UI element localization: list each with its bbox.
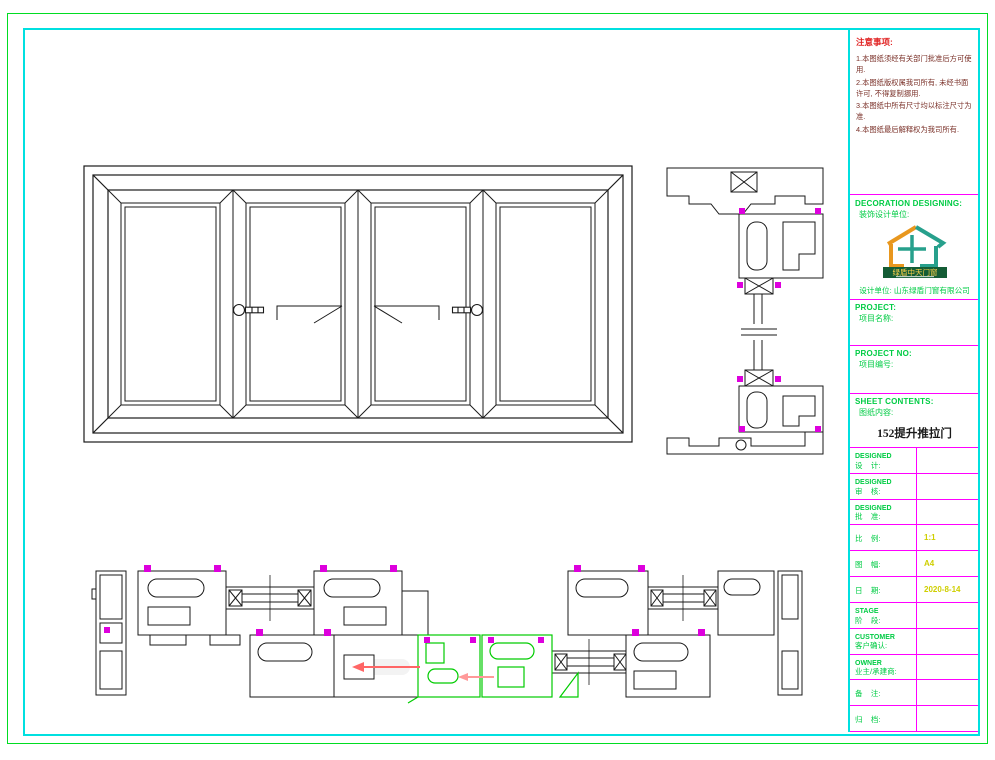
- row-date: 日 期: 2020-8-14: [850, 576, 978, 602]
- paper-size-value: A4: [924, 559, 934, 568]
- door-handle-icon: [234, 305, 264, 316]
- row-designed-2: DESIGNED审 核:: [850, 473, 978, 499]
- row-customer: CUSTOMER客户确认:: [850, 628, 978, 654]
- row-remarks: 备 注:: [850, 679, 978, 705]
- row-label-zh: 阶 段:: [855, 616, 916, 625]
- row-label-zh: 比 例:: [855, 534, 916, 543]
- title-block: 注意事项: 1.本图纸须经有关部门批准后方可使用. 2.本图纸版权属我司所有, …: [848, 28, 978, 732]
- sheet-contents-label-zh: 图纸内容:: [855, 407, 974, 418]
- notes-section: 注意事项: 1.本图纸须经有关部门批准后方可使用. 2.本图纸版权属我司所有, …: [850, 28, 978, 195]
- row-label-zh: 审 核:: [855, 487, 916, 496]
- row-label-zh: 日 期:: [855, 586, 916, 595]
- vertical-section-drawing: [655, 158, 835, 458]
- project-no-section: PROJECT NO: 项目编号:: [850, 346, 978, 394]
- project-no-label-zh: 项目编号:: [855, 359, 974, 370]
- notes-title: 注意事项:: [856, 36, 973, 48]
- company-logo: 绿盾中天门窗: [855, 222, 974, 283]
- note-item: 3.本图纸中所有尺寸均以标注尺寸为准.: [856, 100, 973, 123]
- horizontal-section-drawing: [90, 555, 805, 705]
- project-no-label: PROJECT NO:: [855, 349, 974, 358]
- svg-text:绿盾中天门窗: 绿盾中天门窗: [892, 267, 937, 277]
- row-label-zh: 设 计:: [855, 461, 916, 470]
- row-designed-3: DESIGNED批 准:: [850, 499, 978, 525]
- note-item: 1.本图纸须经有关部门批准后方可使用.: [856, 53, 973, 76]
- row-label-zh: 批 准:: [855, 512, 916, 521]
- company-logo-house-icon: 绿盾中天门窗: [880, 222, 950, 278]
- project-label: PROJECT:: [855, 303, 974, 312]
- sheet-contents-section: SHEET CONTENTS: 图纸内容: 152提升推拉门: [850, 394, 978, 448]
- door-handle-icon: [453, 305, 483, 316]
- note-item: 4.本图纸最后解释权为我司所有.: [856, 124, 973, 135]
- scale-value: 1:1: [924, 533, 936, 542]
- row-label-en: DESIGNED: [855, 479, 916, 487]
- decoration-designing-label-zh: 装饰设计单位:: [855, 209, 974, 220]
- row-archive: 归 档:: [850, 705, 978, 731]
- row-label-zh: 备 注:: [855, 689, 916, 698]
- decoration-designing-label: DECORATION DESIGNING:: [855, 199, 974, 208]
- cad-sheet: 注意事项: 1.本图纸须经有关部门批准后方可使用. 2.本图纸版权属我司所有, …: [0, 0, 995, 760]
- decoration-designing-section: DECORATION DESIGNING: 装饰设计单位: 绿盾中天门窗 设计单…: [850, 195, 978, 300]
- row-label-zh: 归 档:: [855, 715, 916, 724]
- row-owner: OWNER业主/承建商:: [850, 654, 978, 680]
- project-label-zh: 项目名称:: [855, 313, 974, 324]
- design-company-name: 设计单位: 山东绿盾门窗有限公司: [855, 285, 974, 296]
- row-label-en: STAGE: [855, 608, 916, 616]
- title-block-rows: DESIGNED设 计: DESIGNED审 核: DESIGNED批 准: 比…: [850, 448, 978, 732]
- row-scale: 比 例: 1:1: [850, 524, 978, 550]
- note-item: 2.本图纸版权属我司所有, 未经书面许可, 不得复制挪用.: [856, 77, 973, 100]
- row-paper-size: 图 幅: A4: [850, 550, 978, 576]
- highlighted-interlock-profiles: [408, 635, 578, 703]
- row-label-zh: 客户确认:: [855, 641, 916, 650]
- row-label-zh: 业主/承建商:: [855, 667, 916, 676]
- door-elevation-drawing: [80, 160, 638, 448]
- row-label-en: DESIGNED: [855, 453, 916, 461]
- row-designed-1: DESIGNED设 计:: [850, 448, 978, 473]
- row-label-zh: 图 幅:: [855, 560, 916, 569]
- row-stage: STAGE阶 段:: [850, 602, 978, 628]
- sheet-contents-label: SHEET CONTENTS:: [855, 397, 974, 406]
- date-value: 2020-8-14: [924, 585, 960, 594]
- project-section: PROJECT: 项目名称:: [850, 300, 978, 346]
- sheet-contents-value: 152提升推拉门: [855, 425, 974, 441]
